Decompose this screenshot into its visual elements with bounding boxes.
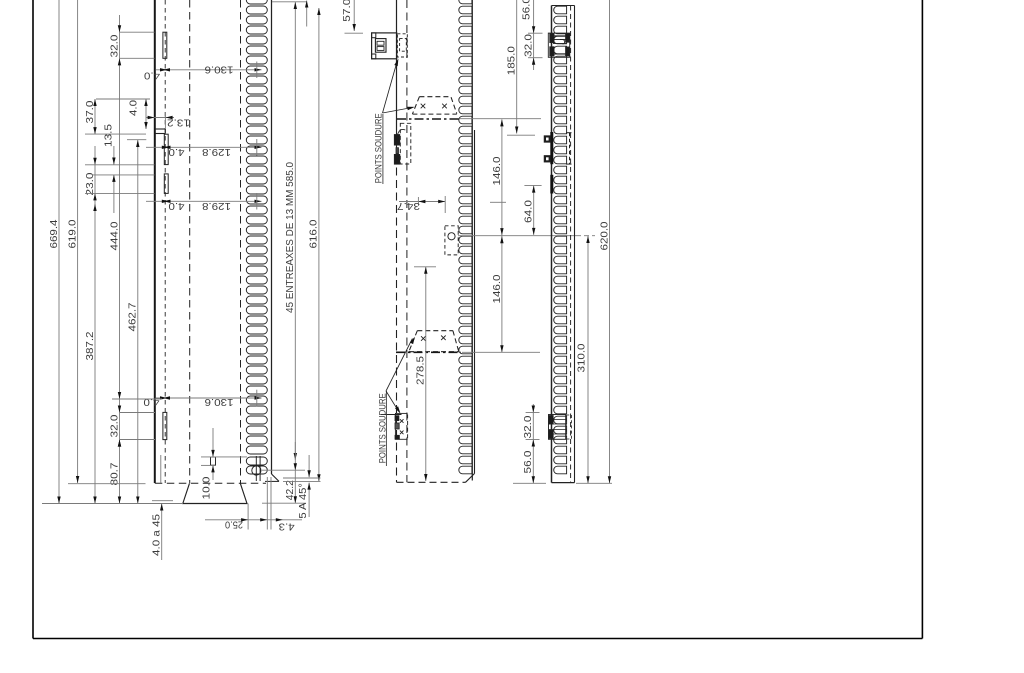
svg-text:4.0: 4.0 xyxy=(168,146,184,157)
svg-text:45 ENTREAXES DE 13 MM 585.0: 45 ENTREAXES DE 13 MM 585.0 xyxy=(285,162,296,313)
svg-text:185.0: 185.0 xyxy=(507,46,518,76)
svg-text:5 A 45°: 5 A 45° xyxy=(298,483,309,519)
svg-text:146.0: 146.0 xyxy=(492,274,503,304)
svg-text:620.0: 620.0 xyxy=(599,221,610,251)
svg-text:619.0: 619.0 xyxy=(67,219,78,249)
svg-text:129.8: 129.8 xyxy=(201,200,231,211)
svg-text:POINTS SOUDURE: POINTS SOUDURE xyxy=(377,393,387,463)
svg-text:4.3: 4.3 xyxy=(278,521,294,532)
svg-text:42.2: 42.2 xyxy=(285,480,296,500)
svg-text:387.2: 387.2 xyxy=(85,331,96,361)
svg-text:462.7: 462.7 xyxy=(128,302,139,332)
svg-text:669.4: 669.4 xyxy=(49,219,60,249)
svg-text:32.0: 32.0 xyxy=(523,415,534,439)
svg-text:4.0: 4.0 xyxy=(129,100,140,116)
svg-text:616.0: 616.0 xyxy=(309,219,320,249)
svg-text:146.0: 146.0 xyxy=(492,156,503,186)
svg-text:278.5: 278.5 xyxy=(416,355,427,385)
svg-text:23.0: 23.0 xyxy=(85,172,96,196)
svg-text:4.0: 4.0 xyxy=(144,70,160,81)
svg-text:10.0: 10.0 xyxy=(201,476,212,500)
svg-text:80.7: 80.7 xyxy=(109,462,120,486)
svg-text:4.0: 4.0 xyxy=(168,200,184,211)
svg-text:64.0: 64.0 xyxy=(524,199,535,223)
svg-text:POINTS SOUDURE: POINTS SOUDURE xyxy=(373,113,383,183)
svg-text:25.0: 25.0 xyxy=(225,519,243,530)
svg-text:56.0: 56.0 xyxy=(522,0,533,20)
svg-text:310.0: 310.0 xyxy=(577,343,588,373)
svg-text:13.5: 13.5 xyxy=(104,123,115,147)
svg-text:129.8: 129.8 xyxy=(201,146,231,157)
svg-text:4.0: 4.0 xyxy=(143,396,159,407)
svg-text:32.0: 32.0 xyxy=(109,34,120,58)
svg-text:130.6: 130.6 xyxy=(204,396,234,407)
svg-text:130.6: 130.6 xyxy=(204,64,234,75)
svg-text:444.0: 444.0 xyxy=(109,221,120,251)
svg-text:34.7: 34.7 xyxy=(396,200,420,211)
svg-text:32.0: 32.0 xyxy=(109,414,120,438)
svg-text:4.0 a 45: 4.0 a 45 xyxy=(152,514,163,556)
svg-text:37.0: 37.0 xyxy=(85,100,96,124)
svg-text:57.0: 57.0 xyxy=(342,0,353,22)
svg-text:56.0: 56.0 xyxy=(523,450,534,474)
svg-text:32.0: 32.0 xyxy=(523,33,534,57)
svg-text:13.2: 13.2 xyxy=(166,117,190,128)
